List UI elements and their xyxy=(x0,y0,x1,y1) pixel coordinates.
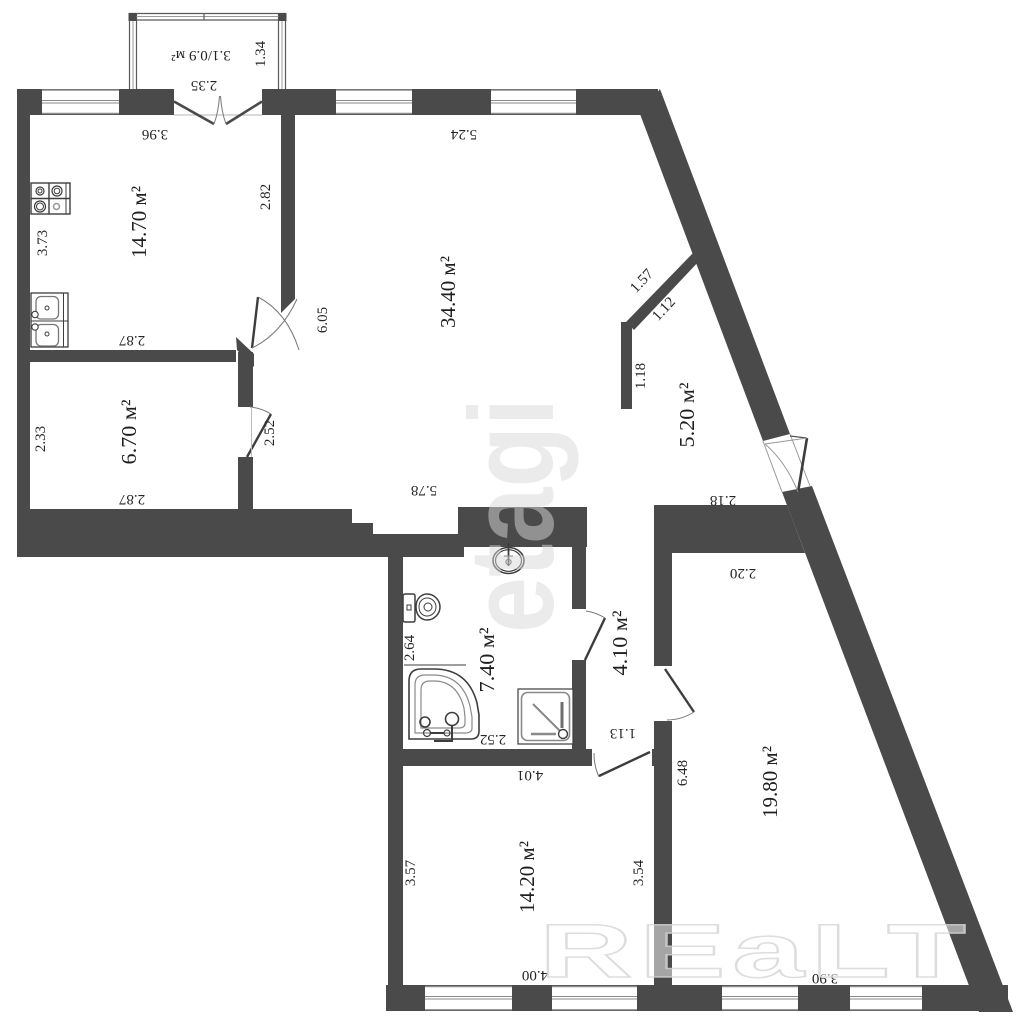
svg-text:2.82: 2.82 xyxy=(258,184,274,210)
svg-text:5.78: 5.78 xyxy=(411,482,437,498)
svg-text:6.70 м²: 6.70 м² xyxy=(117,400,141,465)
svg-text:2.52: 2.52 xyxy=(480,731,506,747)
svg-text:6.48: 6.48 xyxy=(675,760,691,786)
svg-text:2.87: 2.87 xyxy=(118,491,145,507)
svg-text:1.13: 1.13 xyxy=(610,725,636,741)
svg-text:3.1/0.9 м²: 3.1/0.9 м² xyxy=(171,47,231,63)
svg-text:5.20 м²: 5.20 м² xyxy=(675,383,699,448)
svg-text:6.05: 6.05 xyxy=(315,307,331,333)
svg-text:1.18: 1.18 xyxy=(633,363,649,389)
svg-text:14.70 м²: 14.70 м² xyxy=(127,186,151,258)
svg-text:5.24: 5.24 xyxy=(450,126,477,142)
svg-text:2.33: 2.33 xyxy=(33,426,49,452)
svg-text:3.54: 3.54 xyxy=(631,859,647,886)
svg-text:4.10 м²: 4.10 м² xyxy=(608,611,632,676)
svg-text:2.18: 2.18 xyxy=(710,492,736,508)
svg-text:1.34: 1.34 xyxy=(253,40,269,67)
svg-text:2.20: 2.20 xyxy=(730,565,756,581)
svg-text:2.35: 2.35 xyxy=(191,77,217,93)
svg-text:19.80 м²: 19.80 м² xyxy=(758,746,782,818)
svg-text:3.73: 3.73 xyxy=(35,230,51,256)
svg-text:3.57: 3.57 xyxy=(403,859,419,886)
svg-text:34.40 м²: 34.40 м² xyxy=(436,256,460,328)
svg-text:2.52: 2.52 xyxy=(262,420,278,446)
svg-text:REaLT: REaLT xyxy=(539,909,973,994)
svg-text:3.96: 3.96 xyxy=(141,126,168,142)
svg-text:2.64: 2.64 xyxy=(402,634,418,661)
svg-text:7.40 м²: 7.40 м² xyxy=(475,628,499,693)
svg-text:2.87: 2.87 xyxy=(118,332,145,348)
svg-text:4.01: 4.01 xyxy=(517,767,543,783)
svg-text:14.20 м²: 14.20 м² xyxy=(515,841,539,913)
svg-text:etagi: etagi xyxy=(445,398,579,633)
